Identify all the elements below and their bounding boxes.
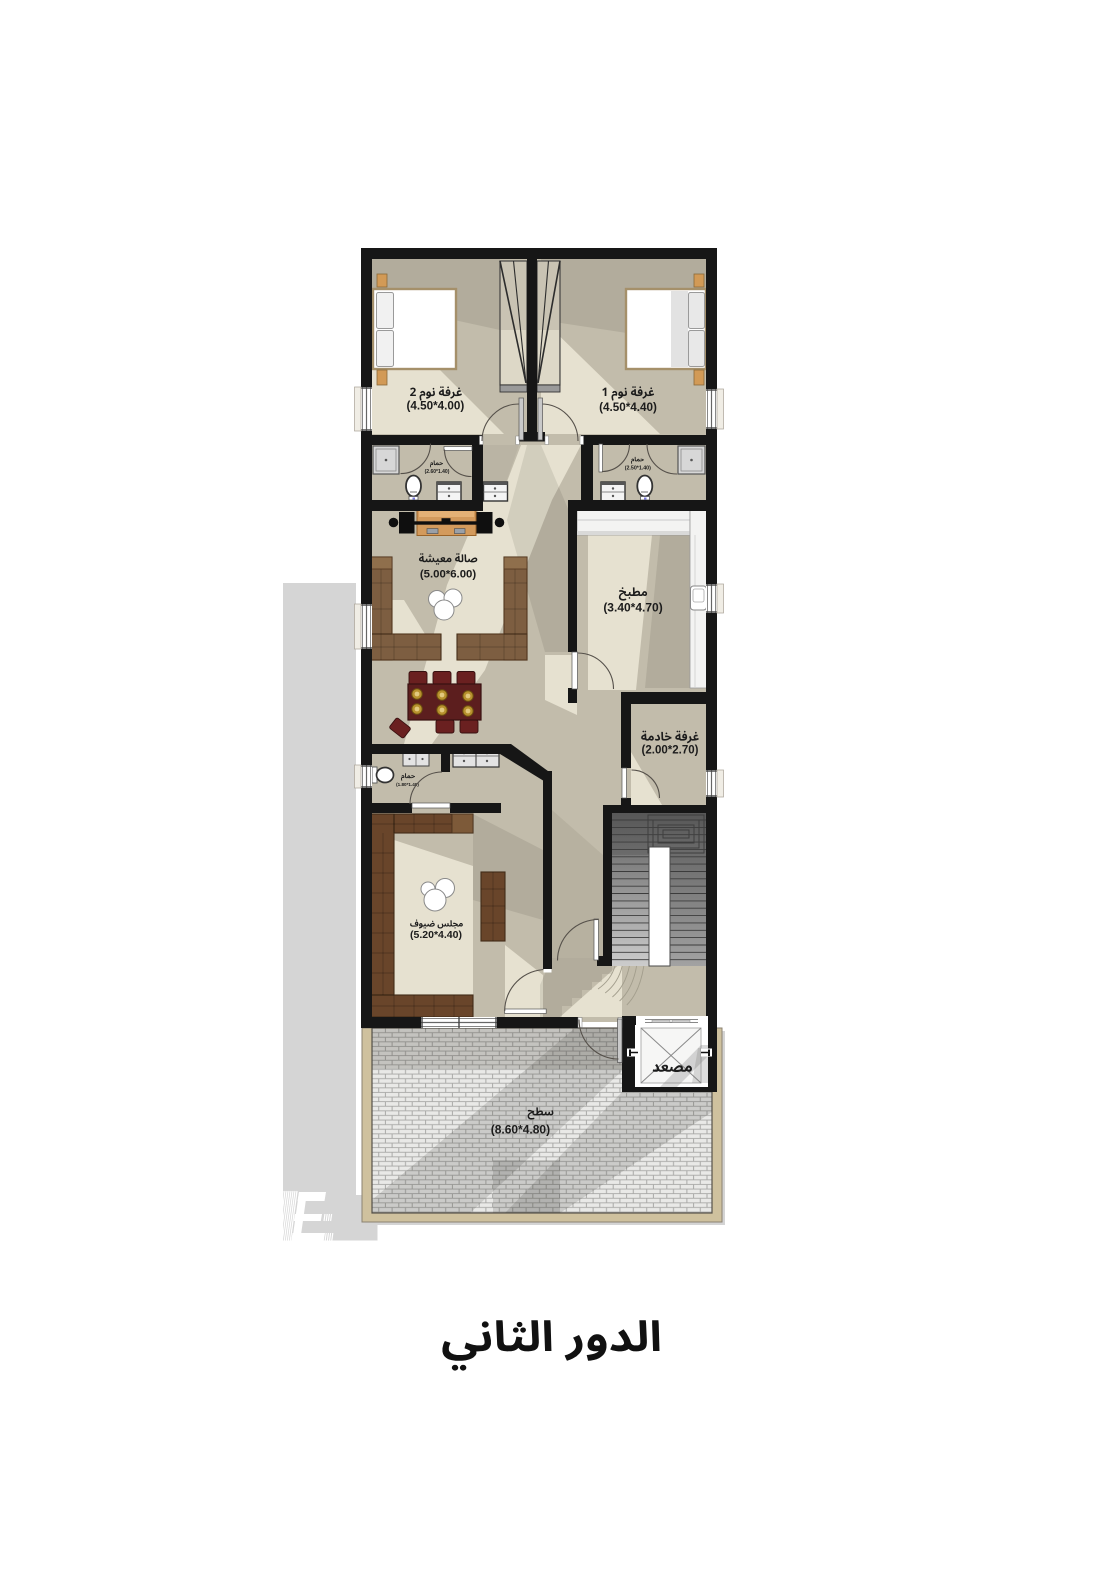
svg-text:(5.20*4.40): (5.20*4.40) — [410, 929, 462, 941]
svg-text:(4.50*4.40): (4.50*4.40) — [599, 401, 657, 414]
svg-text:(2.00*2.70): (2.00*2.70) — [642, 744, 699, 756]
svg-text:(8.60*4.80): (8.60*4.80) — [491, 1123, 550, 1137]
svg-text:(3.40*4.70): (3.40*4.70) — [603, 601, 662, 615]
svg-text:(2.60*1.40): (2.60*1.40) — [425, 469, 450, 475]
svg-text:(2.50*1.40): (2.50*1.40) — [625, 465, 651, 471]
svg-text:(4.50*4.00): (4.50*4.00) — [406, 400, 464, 413]
svg-text:(5.00*6.00): (5.00*6.00) — [420, 568, 477, 580]
